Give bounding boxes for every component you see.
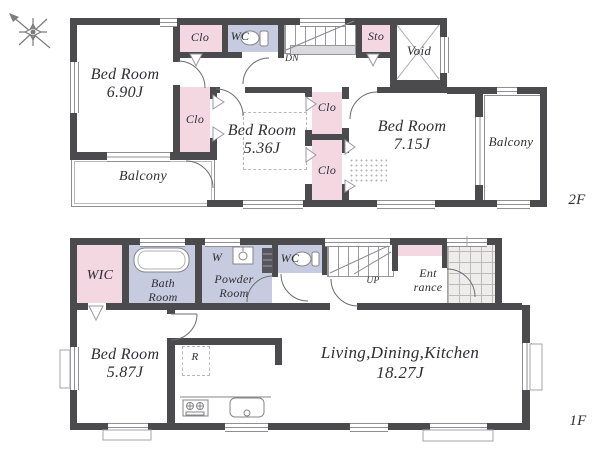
room-name: Bed Room — [91, 346, 160, 363]
stairs-1f — [327, 243, 394, 277]
wall-segment — [278, 18, 284, 58]
wall-segment — [356, 52, 392, 58]
wall-segment — [390, 238, 447, 245]
wall-segment — [305, 87, 312, 97]
window — [430, 423, 487, 432]
wall-segment — [322, 243, 327, 275]
room-label-bedroom-1f: Bed Room 5.87J — [91, 346, 160, 382]
floor-label-1f: 1F — [569, 413, 586, 430]
wall-segment — [272, 245, 278, 277]
window — [225, 423, 268, 432]
room-size: 7.15J — [394, 136, 431, 153]
label-stair-dn: DN — [285, 54, 299, 64]
wall-segment — [177, 52, 228, 58]
wall-segment — [207, 200, 243, 207]
wall-segment — [245, 87, 305, 93]
wall-segment — [540, 87, 547, 207]
label-wc-2f: WC — [231, 29, 250, 44]
front-door — [447, 238, 487, 247]
sliding-door — [475, 117, 485, 185]
wall-segment — [268, 423, 350, 430]
wall-segment — [275, 338, 282, 365]
wall-segment — [495, 240, 502, 305]
wall-segment — [435, 200, 497, 207]
wall-segment — [210, 87, 220, 93]
stair-landing-2f — [290, 45, 356, 55]
wall-segment — [173, 85, 180, 160]
room-label-bedroom-a: Bed Room 6.90J — [91, 66, 160, 102]
wall-segment — [122, 245, 129, 303]
window — [350, 423, 388, 432]
wall-segment — [305, 130, 312, 146]
window — [160, 18, 177, 27]
kitchen-counter — [180, 397, 271, 417]
wall-segment — [305, 184, 312, 207]
wall-segment — [70, 238, 140, 245]
room-name: Bed Room — [228, 122, 297, 139]
label-bath: Bath Room — [148, 277, 177, 305]
floor-plan: Bed Room 6.90J Bed Room 5.36J Bed Room 7… — [0, 0, 600, 450]
room-label-bedroom-c: Bed Room 7.15J — [378, 118, 447, 154]
wall-segment — [167, 338, 282, 345]
label-entrance: Ent rance — [414, 266, 443, 295]
wall-segment — [522, 390, 530, 430]
floor-hatch-2f — [349, 158, 387, 182]
window — [522, 343, 532, 390]
wall-segment — [148, 423, 225, 430]
wall-segment — [70, 238, 77, 347]
room-size: 18.27J — [376, 363, 424, 382]
window — [205, 238, 240, 247]
wall-segment — [70, 18, 77, 62]
label-closet-c1: Clo — [318, 100, 336, 115]
window — [497, 87, 517, 96]
wall-segment — [303, 200, 377, 207]
wall-segment — [342, 87, 349, 99]
window — [70, 347, 79, 390]
label-closet-mid: Clo — [186, 112, 204, 127]
label-storage: Sto — [368, 29, 384, 44]
label-void: Void — [407, 43, 431, 59]
room-size: 5.87J — [107, 364, 144, 381]
wall-segment — [342, 128, 349, 153]
wall-segment — [388, 423, 430, 430]
label-closet-top: Clo — [191, 30, 209, 45]
label-washer: W — [212, 250, 222, 265]
wall-segment — [522, 305, 530, 343]
window — [377, 200, 435, 209]
wall-segment — [228, 52, 242, 58]
sink-icon — [230, 398, 264, 417]
floor-label-2f: 2F — [568, 192, 585, 209]
wall-segment — [475, 93, 483, 117]
label-wc-1f: WC — [281, 251, 300, 266]
wall-segment — [70, 152, 107, 160]
label-line: Room — [219, 286, 248, 300]
wall-segment — [390, 18, 397, 87]
room-name: Living,Dining,Kitchen — [321, 343, 479, 362]
window — [300, 18, 345, 27]
compass-icon — [9, 13, 50, 48]
wall-segment — [222, 24, 228, 52]
wall-segment — [390, 80, 447, 87]
room-label-ldk: Living,Dining,Kitchen 18.27J — [321, 343, 479, 383]
room-label-bedroom-b: Bed Room 5.36J — [228, 122, 297, 158]
wall-segment — [440, 18, 447, 37]
window — [440, 37, 449, 73]
window — [70, 62, 79, 113]
label-balcony-right: Balcony — [489, 134, 534, 150]
entrance-tile — [447, 240, 496, 305]
label-line: Ent — [419, 266, 437, 280]
wall-segment — [240, 238, 325, 245]
label-line: Bath — [151, 276, 175, 290]
wall-segment — [167, 338, 175, 430]
wall-segment — [377, 87, 478, 93]
wall-segment — [167, 310, 175, 314]
window — [243, 200, 303, 209]
window — [108, 423, 148, 432]
wall-segment — [185, 238, 205, 245]
room-name: Bed Room — [91, 66, 160, 83]
wall-segment — [312, 134, 342, 140]
wall-segment — [210, 138, 217, 160]
wall-segment — [70, 18, 160, 25]
label-line: rance — [414, 280, 443, 294]
wall-segment — [475, 185, 483, 200]
stove-icon — [183, 400, 208, 416]
label-balcony-left: Balcony — [119, 169, 167, 185]
label-powder: Powder Room — [214, 273, 253, 301]
label-line: Powder — [214, 272, 253, 286]
wall-segment — [530, 200, 547, 207]
wall-segment — [70, 423, 108, 430]
wall-segment — [357, 303, 522, 310]
window — [497, 200, 530, 209]
label-wic: WIC — [87, 268, 114, 284]
label-line: Room — [148, 290, 177, 304]
label-stair-up: UP — [366, 276, 379, 286]
label-closet-c2: Clo — [318, 163, 336, 178]
room-size: 6.90J — [107, 84, 144, 101]
wall-segment — [70, 303, 88, 310]
wall-segment — [342, 184, 349, 207]
room-name: Bed Room — [378, 118, 447, 135]
room-size: 5.36J — [244, 140, 281, 157]
wall-segment — [106, 303, 330, 310]
window — [140, 238, 185, 247]
wall-segment — [195, 245, 202, 303]
wall-segment — [392, 243, 398, 271]
window — [325, 238, 390, 247]
label-fridge: R — [191, 351, 198, 363]
window — [107, 152, 170, 162]
